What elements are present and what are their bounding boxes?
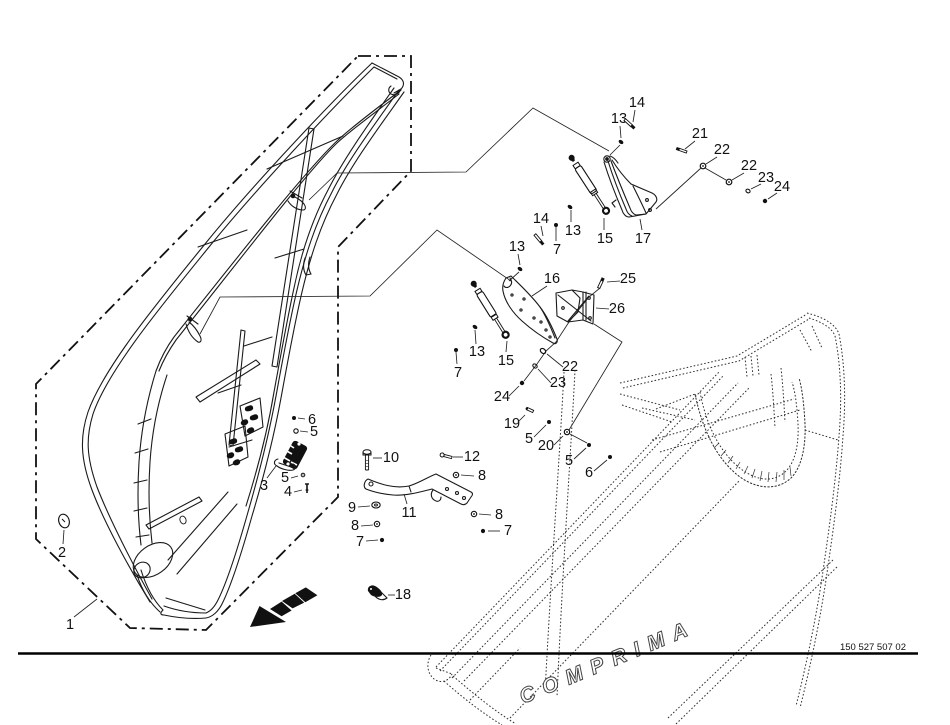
svg-text:4: 4	[284, 484, 292, 500]
svg-text:5: 5	[525, 431, 533, 447]
svg-text:1: 1	[66, 617, 74, 633]
svg-text:8: 8	[495, 507, 503, 523]
svg-text:23: 23	[758, 170, 774, 186]
svg-text:22: 22	[714, 142, 730, 158]
svg-text:11: 11	[401, 505, 416, 521]
svg-text:14: 14	[629, 95, 645, 111]
svg-text:14: 14	[533, 211, 549, 227]
svg-text:5: 5	[565, 453, 573, 469]
svg-text:7: 7	[356, 534, 364, 550]
svg-text:12: 12	[464, 449, 480, 465]
svg-text:8: 8	[351, 518, 359, 534]
svg-text:13: 13	[565, 223, 581, 239]
svg-text:13: 13	[469, 344, 485, 360]
svg-text:150 527 507 02: 150 527 507 02	[840, 642, 906, 653]
svg-text:6: 6	[585, 465, 593, 481]
svg-text:24: 24	[494, 389, 510, 405]
svg-text:9: 9	[348, 500, 356, 516]
svg-text:26: 26	[609, 301, 625, 317]
svg-text:17: 17	[635, 231, 651, 247]
svg-text:8: 8	[478, 468, 486, 484]
svg-text:7: 7	[553, 242, 561, 258]
svg-text:3: 3	[260, 478, 268, 494]
svg-text:15: 15	[597, 231, 613, 247]
svg-text:7: 7	[504, 523, 512, 539]
svg-text:5: 5	[310, 424, 318, 440]
svg-text:22: 22	[741, 158, 757, 174]
svg-text:19: 19	[504, 416, 520, 432]
svg-text:13: 13	[509, 239, 525, 255]
svg-text:18: 18	[395, 587, 411, 603]
svg-text:20: 20	[538, 438, 554, 454]
svg-text:2: 2	[58, 545, 66, 561]
svg-text:10: 10	[383, 450, 399, 466]
svg-text:7: 7	[454, 365, 462, 381]
svg-text:21: 21	[692, 126, 708, 142]
svg-text:25: 25	[620, 271, 636, 287]
svg-text:24: 24	[774, 179, 790, 195]
svg-text:15: 15	[498, 353, 514, 369]
svg-text:13: 13	[611, 111, 627, 127]
svg-text:16: 16	[544, 271, 560, 287]
